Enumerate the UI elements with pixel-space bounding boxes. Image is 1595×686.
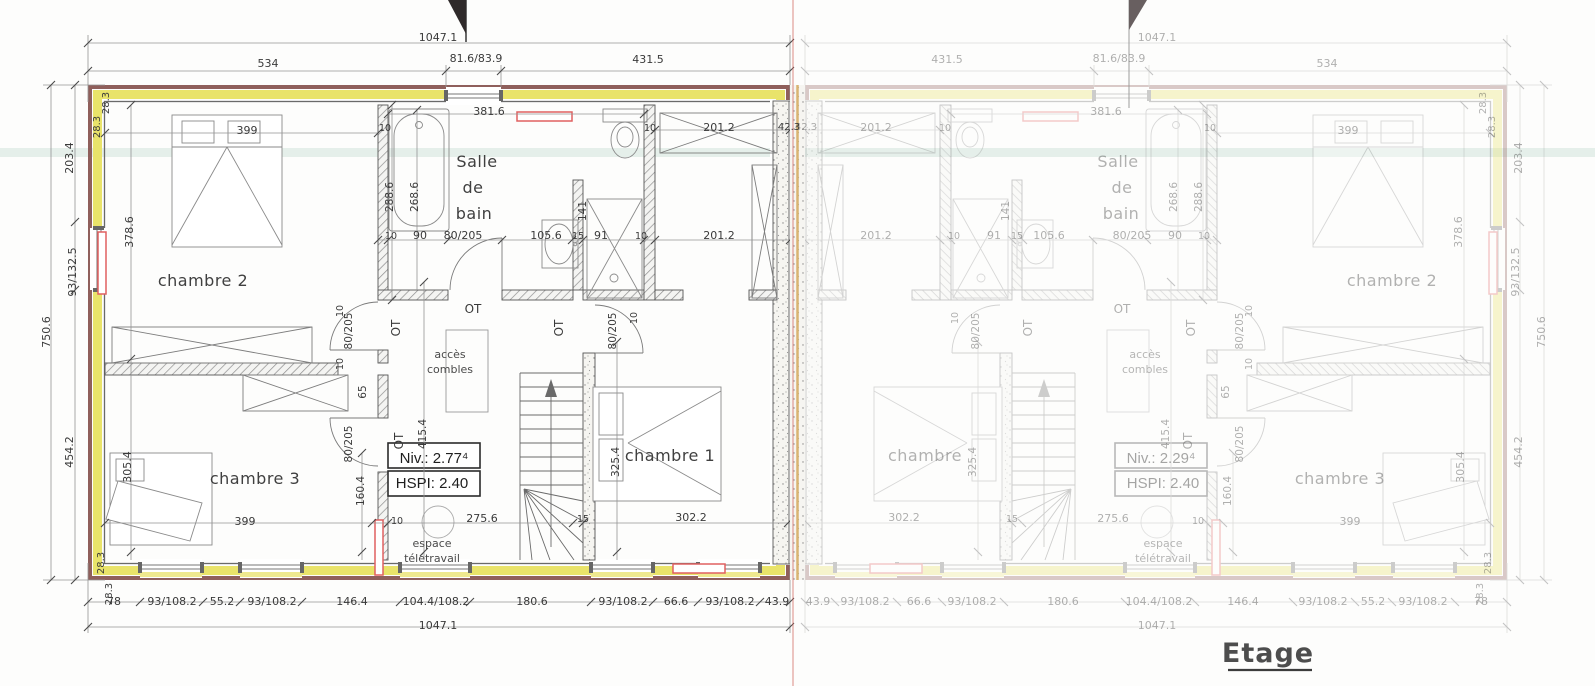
dim-label: 1047.1 <box>1138 619 1177 632</box>
note-label: combles <box>427 363 473 376</box>
dim-label: 28.3 <box>92 116 103 138</box>
dim-label: 325.4 <box>610 447 622 477</box>
dim-label: 93/108.2 <box>598 595 647 608</box>
note-label: combles <box>1122 363 1168 376</box>
dim-label: 10 <box>1244 305 1255 317</box>
dim-label: 15 <box>572 231 584 242</box>
dim-label: 288.6 <box>384 182 396 212</box>
dim-label: 302.2 <box>888 511 920 524</box>
dim-label: 90 <box>413 229 427 242</box>
dim-label: 146.4 <box>336 595 368 608</box>
dim-label: 399 <box>1338 124 1359 137</box>
dim-label: 146.4 <box>1227 595 1259 608</box>
dim-label: 90 <box>1168 229 1182 242</box>
dim-label: 10 <box>948 231 960 242</box>
drawing-title: Etage <box>1222 638 1314 669</box>
dim-label: OT <box>389 319 403 336</box>
note-label: télétravail <box>404 552 460 565</box>
dim-label: 10 <box>629 312 640 324</box>
dim-label: 15 <box>1006 514 1018 525</box>
dim-label: 305.4 <box>121 451 134 483</box>
room-label: chambre 3 <box>1295 469 1385 488</box>
dim-label: 93/108.2 <box>1398 595 1447 608</box>
dim-label: 201.2 <box>703 121 735 134</box>
dim-label: 1047.1 <box>419 619 458 632</box>
dim-label: 78 <box>107 595 121 608</box>
dim-label: 55.2 <box>210 595 235 608</box>
dim-label: 141 <box>577 201 589 221</box>
note-label: accès <box>434 348 466 361</box>
dim-label: 399 <box>237 124 258 137</box>
dim-label: 750.6 <box>1535 316 1548 348</box>
level-label: HSPI: 2.40 <box>396 475 469 492</box>
dim-label: 534 <box>1317 57 1338 70</box>
dim-label: 10 <box>1192 516 1204 527</box>
dim-label: 160.4 <box>1222 476 1234 506</box>
dim-label: 80/205 <box>970 313 982 350</box>
dim-label: 305.4 <box>1454 451 1467 483</box>
level-label: Niv.: 2.77⁴ <box>400 450 469 467</box>
dim-label: 10 <box>385 231 397 242</box>
dim-label: 399 <box>1340 515 1361 528</box>
dim-label: 66.6 <box>907 595 932 608</box>
dim-label: 28.3 <box>1478 92 1489 114</box>
room-label: chambre 1 <box>625 446 715 465</box>
room-label: bain <box>1103 204 1140 223</box>
dim-label: 80/205 <box>444 229 483 242</box>
level-label: Niv.: 2.29⁴ <box>1127 450 1196 467</box>
room-label: de <box>1112 178 1133 197</box>
dim-label: 80/205 <box>343 426 355 463</box>
dim-label: 15 <box>577 514 589 525</box>
dim-label: 415.4 <box>417 419 429 449</box>
dim-label: 378.6 <box>1452 216 1465 248</box>
dim-label: 381.6 <box>1090 105 1122 118</box>
dim-label: 180.6 <box>1047 595 1079 608</box>
room-label: chambre 2 <box>158 271 248 290</box>
room-label: chambre <box>888 446 962 465</box>
dim-label: 10 <box>391 516 403 527</box>
dim-label: 66.6 <box>664 595 689 608</box>
dim-label: 65 <box>357 385 369 398</box>
note-label: espace <box>412 537 451 550</box>
dim-label: 28.3 <box>96 552 107 574</box>
dim-label: 15 <box>1011 231 1023 242</box>
level-label: HSPI: 2.40 <box>1127 475 1200 492</box>
dim-label: 302.2 <box>675 511 707 524</box>
dim-label: 80/205 <box>1234 313 1246 350</box>
dim-label: 454.2 <box>1512 436 1525 468</box>
dim-label: 28.3 <box>1483 552 1494 574</box>
room-label: Salle <box>1097 152 1138 171</box>
dim-label: 104.4/108.2 <box>1126 595 1193 608</box>
dim-label: 201.2 <box>860 229 892 242</box>
room-label: bain <box>456 204 493 223</box>
dim-label: 10 <box>379 123 391 134</box>
dim-label: 750.6 <box>40 316 53 348</box>
dim-label: 10 <box>950 312 961 324</box>
dim-label: 93/108.2 <box>705 595 754 608</box>
dim-label: OT <box>392 432 406 449</box>
dim-label: 10 <box>644 123 656 134</box>
dim-label: 10 <box>335 305 346 317</box>
room-label: Salle <box>456 152 497 171</box>
room-label: chambre 2 <box>1347 271 1437 290</box>
dim-label: 28.3 <box>1487 116 1498 138</box>
dim-label: 93/108.2 <box>147 595 196 608</box>
dim-label: 160.4 <box>355 476 367 506</box>
dim-label: 201.2 <box>860 121 892 134</box>
dim-label: 10 <box>1204 123 1216 134</box>
dim-label: 93/132.5 <box>1509 247 1522 296</box>
dim-label: 80/205 <box>1234 426 1246 463</box>
dim-label: 10 <box>1244 358 1255 370</box>
dim-label: 93/108.2 <box>1298 595 1347 608</box>
dim-label: 180.6 <box>516 595 548 608</box>
dim-label: 203.4 <box>63 142 76 174</box>
dim-label: 275.6 <box>466 512 498 525</box>
dim-label: 381.6 <box>473 105 505 118</box>
dim-label: 10 <box>335 358 346 370</box>
dim-label: 91 <box>987 229 1001 242</box>
dim-label: 431.5 <box>931 53 963 66</box>
note-label: espace <box>1143 537 1182 550</box>
dim-label: 81.6/83.9 <box>450 52 503 65</box>
dim-label: 201.2 <box>703 229 735 242</box>
dim-label: 454.2 <box>63 436 76 468</box>
dim-label: 43.9 <box>806 595 831 608</box>
dim-label: 534 <box>258 57 279 70</box>
dim-label: 1047.1 <box>419 31 458 44</box>
dim-label: 378.6 <box>123 216 136 248</box>
note-label: accès <box>1129 348 1161 361</box>
dim-label: 10 <box>635 231 647 242</box>
dim-label: 105.6 <box>530 229 562 242</box>
floor-plan-drawing: 1047.153481.6/83.9431.528.328.3203.493/1… <box>0 0 1595 686</box>
dim-label: 1047.1 <box>1138 31 1177 44</box>
dim-label: 43.9 <box>765 595 790 608</box>
dim-label: 268.6 <box>1168 182 1180 212</box>
dim-label: 80/205 <box>1113 229 1152 242</box>
dim-label: 288.6 <box>1193 182 1205 212</box>
dim-label: 399 <box>235 515 256 528</box>
dim-label: 81.6/83.9 <box>1093 52 1146 65</box>
dim-label: 91 <box>594 229 608 242</box>
dim-label: OT <box>1184 319 1198 336</box>
dim-label: 65 <box>1220 385 1232 398</box>
dim-label: 80/205 <box>343 313 355 350</box>
dim-label: OT <box>1114 302 1131 316</box>
dim-label: 10 <box>939 123 951 134</box>
room-label: de <box>463 178 484 197</box>
dim-label: 28.3 <box>101 92 112 114</box>
dim-label: 80/205 <box>607 313 619 350</box>
dim-label: 10 <box>1198 231 1210 242</box>
dim-label: OT <box>465 302 482 316</box>
dim-label: 275.6 <box>1097 512 1129 525</box>
dim-label: 325.4 <box>967 447 979 477</box>
dim-label: 93/132.5 <box>66 247 79 296</box>
room-label: chambre 3 <box>210 469 300 488</box>
dim-label: OT <box>552 319 566 336</box>
dim-label: 93/108.2 <box>840 595 889 608</box>
dim-label: 55.2 <box>1361 595 1386 608</box>
dim-label: 431.5 <box>632 53 664 66</box>
dim-label: 104.4/108.2 <box>403 595 470 608</box>
dim-label: OT <box>1181 432 1195 449</box>
dim-label: OT <box>1021 319 1035 336</box>
dim-label: 105.6 <box>1033 229 1065 242</box>
dim-label: 141 <box>1000 201 1012 221</box>
note-label: télétravail <box>1135 552 1191 565</box>
dim-label: 415.4 <box>1160 419 1172 449</box>
dim-label: 268.6 <box>409 182 421 212</box>
dim-label: 42.3 <box>795 122 817 133</box>
dim-label: 93/108.2 <box>247 595 296 608</box>
dim-label: 203.4 <box>1512 142 1525 174</box>
dim-label: 93/108.2 <box>947 595 996 608</box>
floor-plan-page: 1047.153481.6/83.9431.528.328.3203.493/1… <box>0 0 1595 686</box>
dim-label: 78 <box>1474 595 1488 608</box>
